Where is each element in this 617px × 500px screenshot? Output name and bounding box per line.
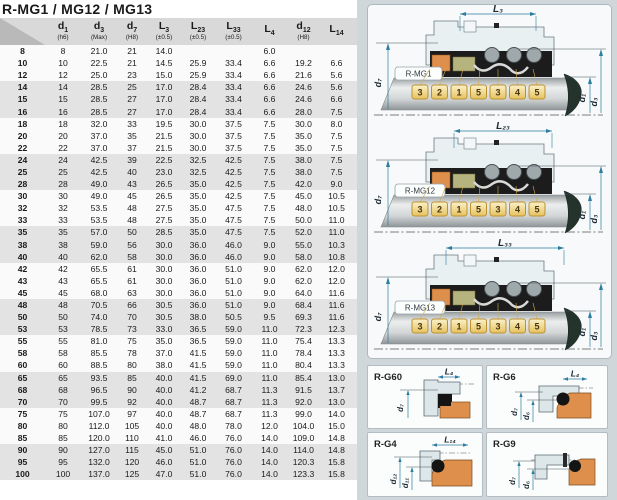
table-cell: 51.0 [181,468,215,480]
row-label: 14 [0,81,45,93]
table-cell: 74.0 [81,311,117,323]
table-cell: 55.0 [287,239,320,251]
svg-text:3: 3 [495,322,500,332]
table-row: 202037.03521.530.037.57.535.07.5 [0,130,357,142]
column-header: L3(±0.5) [147,21,181,41]
table-cell: 85.4 [287,372,320,384]
column-header: L14 [320,24,353,38]
table-cell: 18 [45,118,81,130]
table-cell: 9.0 [320,178,353,190]
table-cell: 23.0 [147,166,181,178]
table-cell: 32.5 [181,166,215,178]
dim-d7-label: d₇ [373,195,383,204]
row-label: 45 [0,287,45,299]
table-cell: 66 [117,299,147,311]
table-cell: 28.5 [81,81,117,93]
rg9-label: R-G9 [493,439,516,450]
table-cell: 38.0 [287,154,320,166]
table-cell: 59.0 [215,335,252,347]
table-cell: 112.0 [81,420,117,432]
table-cell: 47.5 [215,214,252,226]
table-cell: 37.5 [215,142,252,154]
dim-d11-label: d₁₁ [401,478,410,489]
row-label: 18 [0,118,45,130]
table-cell: 12 [45,69,81,81]
spring [485,165,500,180]
table-cell: 30.0 [181,142,215,154]
table-cell: 51.0 [215,299,252,311]
table-cell: 78 [117,347,147,359]
callouts: 3 2 1 5 3 4 5 [412,85,545,99]
table-cell: 12.0 [320,263,353,275]
table-cell: 6.6 [252,106,287,118]
sleeve-dark [563,453,567,467]
drawings-area: R-MG1 3 2 1 5 3 4 [357,0,617,500]
table-cell: 22.5 [147,154,181,166]
table-cell: 28.5 [81,93,117,105]
table-cell: 109.0 [287,432,320,444]
row-label: 28 [0,178,45,190]
table-cell: 64.0 [287,287,320,299]
table-cell: 20 [45,130,81,142]
table-row: 383859.05630.036.046.09.055.010.3 [0,239,357,251]
o-ring [569,460,581,472]
table-cell: 6.6 [252,81,287,93]
row-label: 70 [0,396,45,408]
table-cell: 60 [45,359,81,371]
table-cell: 9.0 [252,263,287,275]
table-cell: 9.0 [252,275,287,287]
detail-panel-rg6: R-G6 L₄ d₇ d₆ [486,365,608,429]
column-header: d7(H8) [117,21,147,41]
table-cell: 19.2 [287,57,320,69]
table-cell: 21.6 [287,69,320,81]
table-row: 535378.57333.036.559.011.072.312.3 [0,323,357,335]
table-cell: 110 [117,432,147,444]
table-row: 323253.54827.535.047.57.548.010.5 [0,202,357,214]
set-screw [464,21,476,32]
table-cell: 50 [45,311,81,323]
row-label: 42 [0,263,45,275]
row-label: 38 [0,239,45,251]
row-label: 32 [0,202,45,214]
table-cell: 15 [45,93,81,105]
table-cell: 14.0 [252,444,287,456]
detail-panel-rg60: R-G60 L₄ d₇ [367,365,483,429]
table-cell: 26.5 [147,178,181,190]
table-cell: 30.0 [147,263,181,275]
table-cell: 76.0 [215,432,252,444]
table-cell: 33 [117,118,147,130]
table-cell: 95 [45,456,81,468]
table-cell: 36.0 [181,239,215,251]
table-row: 252542.54023.032.542.57.538.07.5 [0,166,357,178]
table-row: 242442.53922.532.542.57.538.07.5 [0,154,357,166]
table-cell: 11.6 [320,299,353,311]
table-cell: 78.4 [287,347,320,359]
rg4-label: R-G4 [374,439,397,450]
table-row: 333353.54827.535.047.57.550.011.0 [0,214,357,226]
table-cell: 33.4 [215,81,252,93]
table-cell: 56 [117,239,147,251]
table-cell: 11.0 [252,372,287,384]
table-cell: 25 [45,166,81,178]
spring [527,282,542,297]
table-cell: 105 [117,420,147,432]
rg60-drawing: R-G60 L₄ d₇ [368,366,482,428]
table-cell: 11.0 [252,335,287,347]
table-cell: 85.5 [81,347,117,359]
table-cell: 46.0 [215,251,252,263]
table-cell: 24.6 [287,81,320,93]
table-cell: 5.6 [320,69,353,81]
table-cell: 48.0 [181,420,215,432]
table-cell: 42.5 [215,190,252,202]
column-header: L33(±0.5) [215,21,252,41]
row-label: 75 [0,408,45,420]
table-cell: 17.0 [147,106,181,118]
table-cell: 14.0 [252,456,287,468]
table-cell: 51.0 [215,263,252,275]
row-label: 8 [0,45,45,57]
table-cell: 7.5 [320,106,353,118]
table-cell: 37 [117,142,147,154]
dim-d7-label: d₇ [373,78,383,87]
table-cell: 68 [45,384,81,396]
table-cell: 76.0 [215,456,252,468]
svg-text:4: 4 [515,88,520,98]
table-cell: 45 [45,287,81,299]
table-cell: 35.0 [181,178,215,190]
table-cell: 14.0 [147,45,181,57]
table-cell: 90 [117,384,147,396]
table-cell: 11.3 [252,396,287,408]
table-cell: 48.7 [181,396,215,408]
spring [485,48,500,63]
table-cell: 52.0 [287,226,320,238]
table-cell: 42.0 [287,178,320,190]
table-cell: 22.5 [81,57,117,69]
table-cell: 46.0 [147,456,181,468]
svg-text:2: 2 [437,205,442,215]
table-cell: 120 [117,456,147,468]
table-cell: 6.0 [252,45,287,57]
table-cell: 48 [117,214,147,226]
rg4-drawing: R-G4 L₁₄ d₁₂ d₁₁ [368,433,482,496]
table-cell: 9.0 [252,239,287,251]
table-cell: 14.0 [252,468,287,480]
table-cell: 73 [117,323,147,335]
table-cell: 107.0 [81,408,117,420]
model-tag-label: R-MG1 [406,70,432,79]
svg-text:1: 1 [456,88,461,98]
table-cell: 11.6 [320,287,353,299]
table-cell: 53.5 [81,214,117,226]
table-cell: 10.5 [320,202,353,214]
table-cell: 53.5 [81,202,117,214]
table-cell: 7.5 [252,190,287,202]
table-cell: 36.0 [181,263,215,275]
table-cell: 25.9 [181,57,215,69]
o-ring [557,393,570,406]
table-cell: 92 [117,396,147,408]
table-cell: 61 [117,263,147,275]
table-cell: 59.0 [215,323,252,335]
table-row: 7575107.09740.048.768.711.399.014.0 [0,408,357,420]
table-cell: 38.0 [287,166,320,178]
table-cell: 14.0 [252,432,287,444]
table-cell: 47.5 [215,226,252,238]
dim-d7-label: d₇ [510,407,519,416]
table-cell: 114.0 [287,444,320,456]
seal-drawing-mg12: R-MG12 3 2 1 5 3 4 5 [368,122,609,239]
table-cell: 68.7 [215,408,252,420]
table-cell: 11.0 [252,347,287,359]
spring [507,48,522,63]
table-cell: 33.4 [215,69,252,81]
dim-L14-label: L₁₄ [444,435,456,445]
row-label: 10 [0,57,45,69]
table-row: 151528.52717.028.433.46.624.66.6 [0,93,357,105]
table-cell: 120.0 [81,432,117,444]
table-cell: 91.5 [287,384,320,396]
svg-text:4: 4 [515,205,520,215]
table-cell: 42 [45,263,81,275]
table-cell: 61 [117,275,147,287]
table-cell: 11.3 [252,408,287,420]
row-label: 90 [0,444,45,456]
svg-text:5: 5 [534,205,539,215]
table-cell: 32 [45,202,81,214]
row-label: 16 [0,106,45,118]
model-tag-label: R-MG12 [405,187,436,196]
svg-text:5: 5 [476,322,481,332]
svg-text:5: 5 [534,88,539,98]
table-cell: 35.0 [181,226,215,238]
table-cell: 30.0 [287,118,320,130]
table-cell: 35.0 [181,202,215,214]
table-cell: 115 [117,444,147,456]
table-cell: 48 [45,299,81,311]
table-cell: 6.6 [320,57,353,69]
seal-black-top [438,394,451,406]
table-cell: 14.8 [320,432,353,444]
table-cell: 28.4 [181,106,215,118]
table-cell: 80 [117,359,147,371]
dim-d3-label: d₃ [589,331,599,340]
table-cell: 49.0 [81,190,117,202]
drive-pin [494,23,499,28]
table-cell: 65 [45,372,81,384]
table-cell: 36.0 [181,299,215,311]
table-cell: 7.5 [252,226,287,238]
table-cell: 51.0 [215,275,252,287]
svg-text:2: 2 [437,88,442,98]
table-row: 303049.04526.535.042.57.545.010.5 [0,190,357,202]
table-cell: 68.4 [287,299,320,311]
table-cell: 65.5 [81,275,117,287]
table-cell: 40.0 [147,372,181,384]
table-cell: 33 [45,214,81,226]
face-olive [453,174,475,188]
table-cell: 48 [117,202,147,214]
table-cell: 46.0 [215,239,252,251]
table-cell: 42.5 [81,154,117,166]
row-label: 35 [0,226,45,238]
row-label: 55 [0,335,45,347]
table-cell: 24.6 [287,93,320,105]
table-cell: 70.5 [81,299,117,311]
table-row: 454568.06330.036.051.09.064.011.6 [0,287,357,299]
spring [527,48,542,63]
dim-L4-label: L₄ [445,367,454,377]
table-cell: 35.0 [147,335,181,347]
table-cell: 7.5 [252,118,287,130]
table-cell: 81.0 [81,335,117,347]
svg-text:1: 1 [456,322,461,332]
row-label: 22 [0,142,45,154]
spring [527,165,542,180]
row-label: 43 [0,275,45,287]
table-cell: 120.3 [287,456,320,468]
table-cell: 11.0 [252,323,287,335]
table-cell: 137.0 [81,468,117,480]
row-label: 48 [0,299,45,311]
table-cell: 40.0 [147,420,181,432]
table-cell: 7.5 [252,214,287,226]
table-cell: 17.0 [147,81,181,93]
table-cell: 10.5 [320,190,353,202]
table-cell: 78.0 [215,420,252,432]
table-row: 101022.52114.525.933.46.619.26.6 [0,57,357,69]
dim-d7-label: d₇ [508,476,517,485]
table-cell: 99.0 [287,408,320,420]
table-cell: 13.0 [320,396,353,408]
table-cell: 9.0 [252,299,287,311]
table-cell: 32.0 [81,118,117,130]
table-row: 100100137.012547.051.076.014.0123.315.8 [0,468,357,480]
table-cell: 33.4 [215,57,252,69]
table-cell: 23 [117,69,147,81]
table-cell: 68.0 [81,287,117,299]
table-row: 686896.59040.041.268.711.391.513.7 [0,384,357,396]
table-cell: 25.9 [181,69,215,81]
table-row: 8080112.010540.048.078.012.0104.015.0 [0,420,357,432]
table-cell: 9.0 [252,287,287,299]
dim-d3-label: d₃ [589,214,599,223]
table-cell: 37.5 [215,118,252,130]
table-cell: 35.0 [181,190,215,202]
table-cell: 28.0 [287,106,320,118]
table-cell: 38 [45,239,81,251]
table-cell: 99.5 [81,396,117,408]
table-row: 141428.52517.028.433.46.624.65.6 [0,81,357,93]
drive-pin [494,257,499,262]
table-cell: 30.0 [147,251,181,263]
table-cell: 70 [117,311,147,323]
row-label: 12 [0,69,45,81]
table-cell: 13.3 [320,347,353,359]
table-cell: 33.4 [215,93,252,105]
table-cell: 12.3 [320,323,353,335]
column-header: d12(H8) [287,21,320,41]
table-cell: 7.5 [252,202,287,214]
table-cell: 9.0 [252,251,287,263]
table-cell: 127.0 [81,444,117,456]
table-cell: 80.4 [287,359,320,371]
table-cell: 35.0 [287,142,320,154]
table-cell: 43 [45,275,81,287]
table-cell: 35.0 [181,214,215,226]
table-cell: 7.5 [320,154,353,166]
table-cell: 33.4 [215,106,252,118]
column-header: d1(h6) [45,21,81,41]
table-row: 8821.02114.06.0 [0,45,357,57]
table-cell: 80 [45,420,81,432]
svg-text:1: 1 [456,205,461,215]
table-cell: 30 [45,190,81,202]
table-cell: 15.8 [320,468,353,480]
table-row: 9595132.012046.051.076.014.0120.315.8 [0,456,357,468]
table-cell: 12.0 [320,275,353,287]
table-cell: 76.0 [215,444,252,456]
table-cell: 37.0 [147,347,181,359]
table-cell: 7.5 [320,130,353,142]
table-cell: 11.0 [252,359,287,371]
table-cell: 15.0 [147,69,181,81]
table-cell: 55 [45,335,81,347]
table-cell: 42.5 [215,154,252,166]
table-cell: 51.0 [181,444,215,456]
svg-text:4: 4 [515,322,520,332]
dim-d7-label: d₇ [396,403,405,412]
svg-text:5: 5 [476,88,481,98]
row-label: 53 [0,323,45,335]
table-row: 484870.56630.536.051.09.068.411.6 [0,299,357,311]
table-cell: 13.0 [320,372,353,384]
table-cell: 35.0 [287,130,320,142]
table-cell: 24 [45,154,81,166]
table-cell: 19.5 [147,118,181,130]
table-cell: 10.8 [320,251,353,263]
rg9-drawing: R-G9 d₇ d₆ [487,433,607,496]
table-cell: 21 [117,57,147,69]
set-screw [464,138,476,149]
table-row: 404062.05830.036.046.09.058.010.8 [0,251,357,263]
spring [507,282,522,297]
table-cell: 42.5 [81,166,117,178]
o-ring [432,460,445,473]
table-cell: 33.0 [147,323,181,335]
table-cell: 7.5 [320,142,353,154]
table-cell: 11.6 [320,311,353,323]
table-cell: 41.5 [181,347,215,359]
table-row: 161628.52717.028.433.46.628.07.5 [0,105,357,117]
table-cell: 9.5 [252,311,287,323]
table-cell: 41.2 [181,384,215,396]
table-row: 8585120.011041.046.076.014.0109.014.8 [0,432,357,444]
table-cell: 85 [117,372,147,384]
table-cell: 68.7 [215,396,252,408]
dim-d1-label: d₁ [577,94,587,103]
table-cell: 13.7 [320,384,353,396]
table-row: 656593.58540.041.569.011.085.413.0 [0,372,357,384]
table-cell: 62.0 [287,263,320,275]
row-label: 85 [0,432,45,444]
table-cell: 46.0 [181,432,215,444]
dim-d6-label: d₆ [522,481,531,489]
table-cell: 30.0 [181,130,215,142]
